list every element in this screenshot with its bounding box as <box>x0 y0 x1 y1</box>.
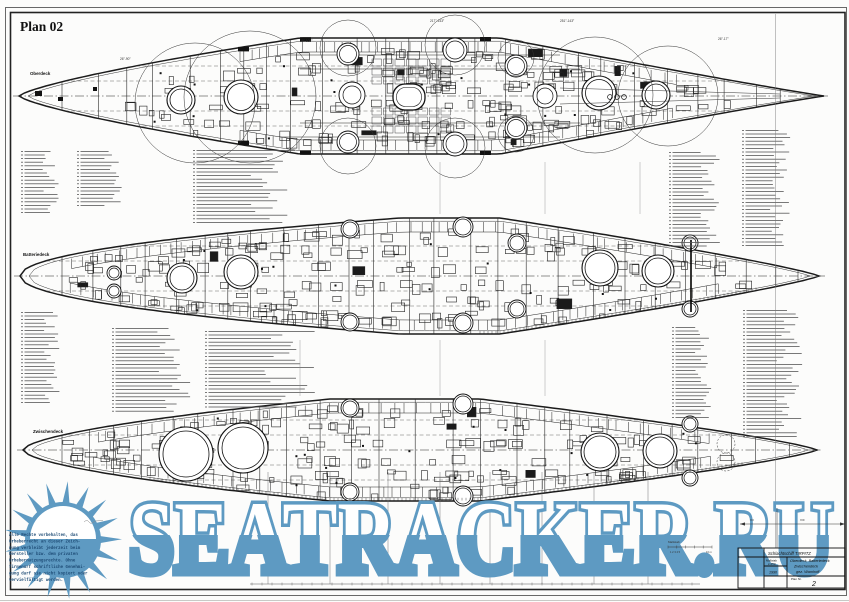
svg-text:217°-143°: 217°-143° <box>430 19 445 23</box>
svg-text:26°-90°: 26°-90° <box>120 57 131 61</box>
svg-text:Batteriedeck: Batteriedeck <box>23 252 50 257</box>
svg-text:Urhebernutzungsrechte. Ohne: Urhebernutzungsrechte. Ohne <box>9 559 76 564</box>
svg-text:Oberdeck, Batteriedeck: Oberdeck, Batteriedeck <box>790 559 831 563</box>
svg-text:2: 2 <box>811 581 816 588</box>
svg-text:gung darf sie nicht kopiert od: gung darf sie nicht kopiert oder <box>9 571 88 576</box>
svg-text:Plan 02: Plan 02 <box>20 19 63 34</box>
svg-text:1990: 1990 <box>769 571 777 575</box>
svg-text:nung verbleibt jederzeit beim: nung verbleibt jederzeit beim <box>9 546 81 551</box>
svg-text:Maßstab: Maßstab <box>668 540 680 544</box>
svg-text:Schlachtschiff TIRPITZ: Schlachtschiff TIRPITZ <box>768 551 811 556</box>
svg-text:Hersteller bzw. dem privaten: Hersteller bzw. dem privaten <box>9 552 78 557</box>
svg-text:gez. Wamhoff: gez. Wamhoff <box>796 570 820 574</box>
svg-text:XIII: XIII <box>800 518 805 522</box>
svg-text:XII: XII <box>750 518 754 522</box>
svg-text:Urheberrecht an dieser Zeich-: Urheberrecht an dieser Zeich- <box>9 539 80 544</box>
svg-text:1 2 3 4 5: 1 2 3 4 5 <box>670 550 681 554</box>
svg-text:10 m: 10 m <box>706 550 712 554</box>
svg-text:Zwischendeck: Zwischendeck <box>33 429 64 434</box>
svg-text:Oberdeck: Oberdeck <box>30 71 51 76</box>
svg-text:Alle Rechte vorbehalten, das: Alle Rechte vorbehalten, das <box>9 533 78 538</box>
svg-text:Plan Nr.: Plan Nr. <box>791 577 802 581</box>
svg-text:251°-143°: 251°-143° <box>560 19 575 23</box>
svg-text:firmenurf schriftliche Genehmi: firmenurf schriftliche Genehmi- <box>9 565 85 570</box>
svg-text:26°-105°: 26°-105° <box>300 39 313 43</box>
svg-text:vervielfältigt werden.: vervielfältigt werden. <box>9 578 63 583</box>
svg-text:Zwischendeck: Zwischendeck <box>793 565 819 569</box>
svg-text:26°-17°: 26°-17° <box>718 37 729 41</box>
svg-text:1:250: 1:250 <box>768 562 776 566</box>
